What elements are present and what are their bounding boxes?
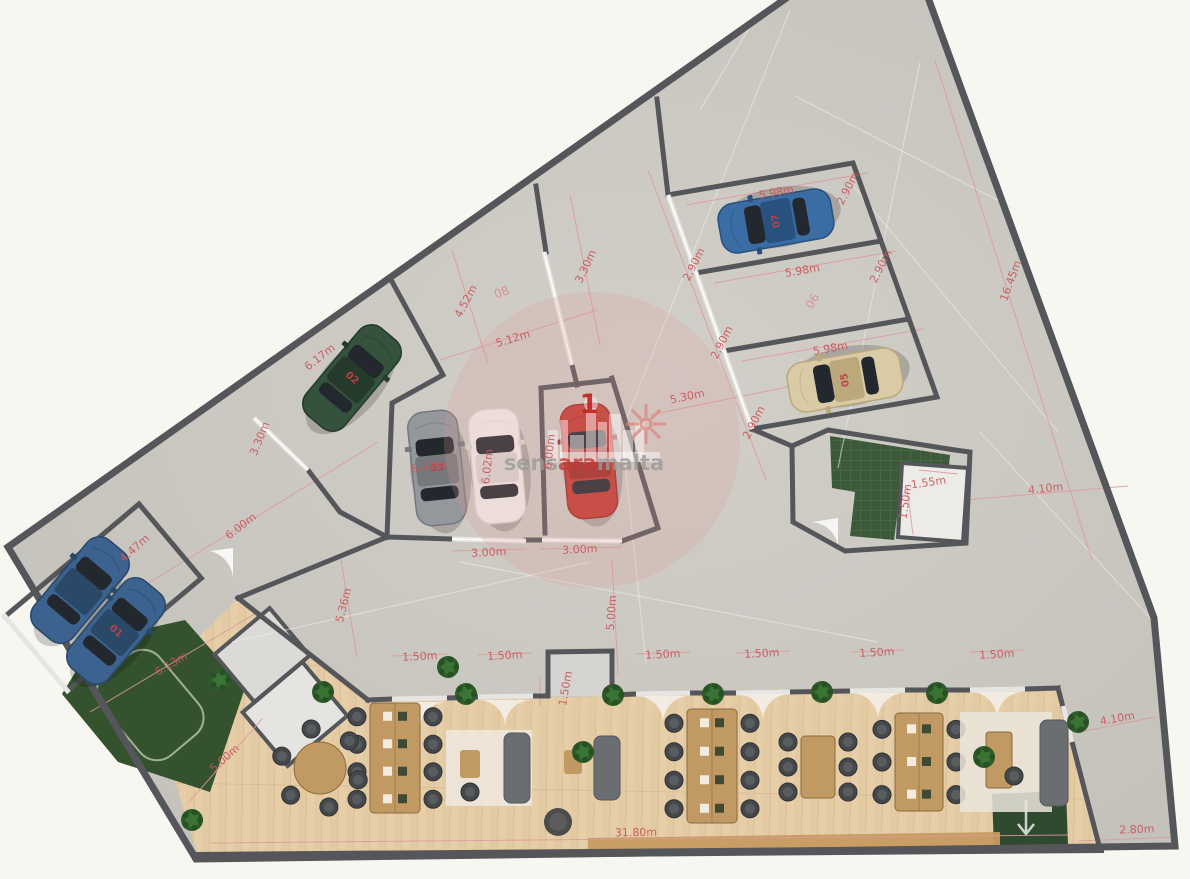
chair (839, 758, 857, 776)
chair (665, 771, 683, 789)
chair (873, 720, 891, 738)
dim-label: 1.50m (744, 646, 780, 661)
chair (741, 743, 759, 761)
chair (779, 733, 797, 751)
plant-icon (811, 681, 833, 703)
chair (779, 758, 797, 776)
vestibule-floor (548, 652, 612, 696)
chair (665, 800, 683, 818)
chair (461, 783, 479, 801)
chair (273, 747, 291, 765)
plant-icon (702, 683, 724, 705)
chair (741, 771, 759, 789)
small-table (779, 733, 857, 801)
dim-label: 1.50m (645, 647, 681, 662)
dim-label: 2.80m (1119, 822, 1155, 836)
sofa (1040, 720, 1068, 806)
plant-icon (455, 683, 477, 705)
chair (302, 720, 320, 738)
dim-label: 1.50m (487, 648, 523, 663)
lounge-area (446, 730, 532, 806)
desk-bank (873, 713, 965, 811)
watermark-text: sensaramalta (504, 451, 664, 475)
sofa (504, 733, 530, 803)
plant-icon (973, 746, 995, 768)
chair (665, 743, 683, 761)
chair (873, 753, 891, 771)
plant-icon (602, 684, 624, 706)
chair (282, 786, 300, 804)
chair (665, 714, 683, 732)
chair (348, 708, 366, 726)
chair (424, 763, 442, 781)
chair (1005, 767, 1023, 785)
chair (340, 732, 358, 750)
chair (741, 714, 759, 732)
dim-label: 3.00m (562, 542, 598, 557)
plant-icon (312, 681, 334, 703)
chair (873, 786, 891, 804)
plant-icon (209, 669, 231, 691)
dim-label: 1.50m (402, 649, 438, 664)
chair (320, 798, 338, 816)
dim-label: 31.80m (615, 826, 657, 840)
plant-icon (572, 741, 594, 763)
plant-icon (1067, 711, 1089, 733)
chair (424, 790, 442, 808)
plant-icon (181, 809, 203, 831)
dim-label: 1.50m (859, 645, 895, 660)
chair (839, 783, 857, 801)
chair (424, 708, 442, 726)
dim-label: 3.00m (471, 545, 507, 560)
floor-plan-svg: 010203040507 sensaramalta 6.17m3.30m4.52… (0, 0, 1190, 879)
plant-icon (437, 656, 459, 678)
plant-icon (926, 682, 948, 704)
unit-marker: 1 (580, 389, 599, 420)
chair (424, 735, 442, 753)
chair (741, 800, 759, 818)
dim-label: 5.00m (604, 595, 619, 631)
sofa (594, 736, 620, 800)
chair (348, 790, 366, 808)
chair (779, 783, 797, 801)
dim-label: 1.50m (979, 647, 1015, 662)
floor-plan-page: 010203040507 sensaramalta 6.17m3.30m4.52… (0, 0, 1190, 879)
chair (839, 733, 857, 751)
chair (349, 771, 367, 789)
